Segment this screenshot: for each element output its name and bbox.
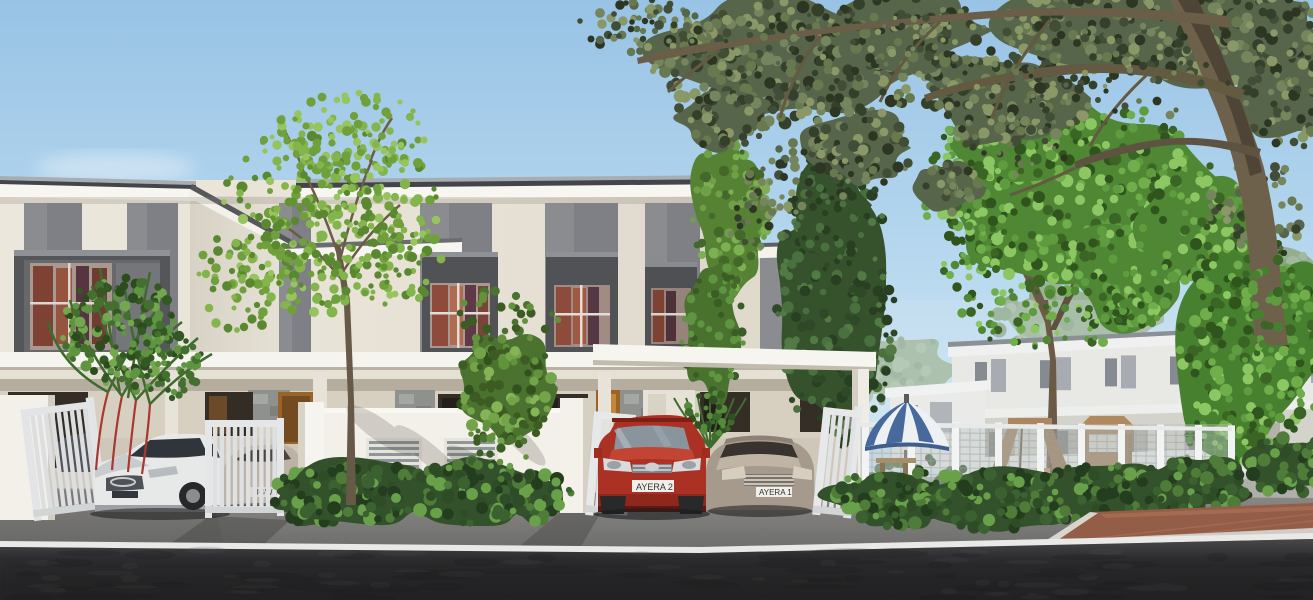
- svg-text:AYERA 1: AYERA 1: [759, 488, 792, 497]
- svg-text:AYERA 2: AYERA 2: [636, 482, 673, 492]
